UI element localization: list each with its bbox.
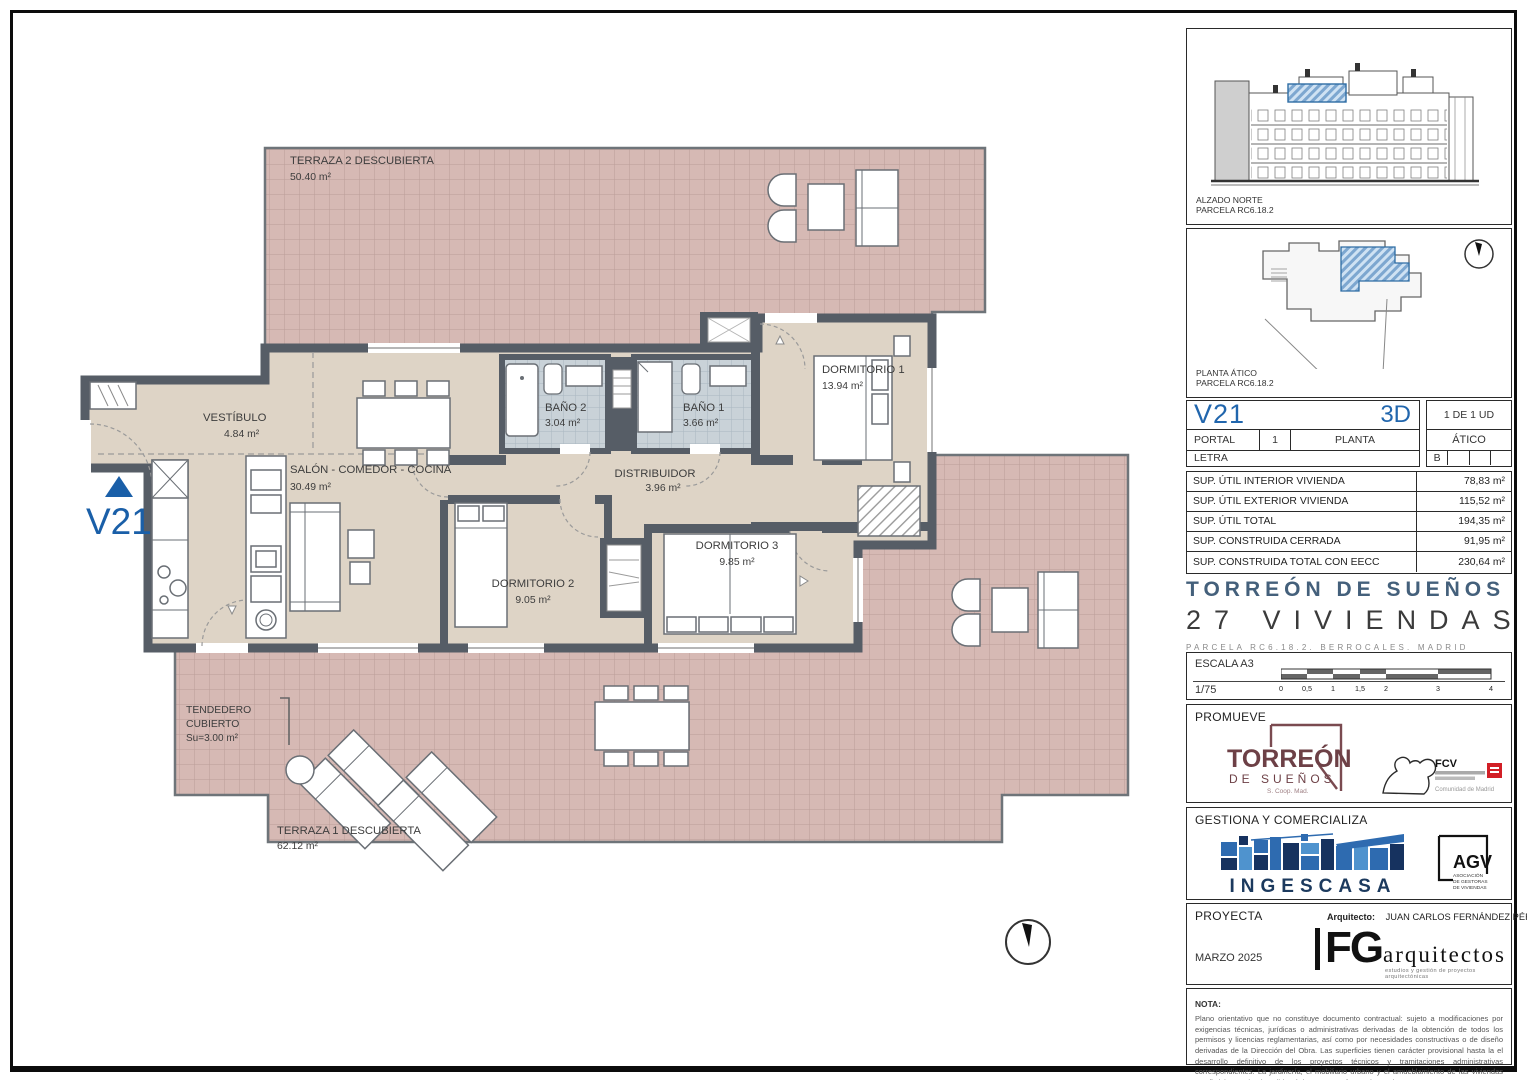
site-plan-drawing — [1187, 229, 1510, 369]
gestiona-logos: INGESCASA AGV ASOCIACIÓN DE GESTORAS DE … — [1187, 808, 1510, 898]
room-area-terraza2: 50.40 m² — [290, 172, 332, 183]
project-units: 27 VIVIENDAS — [1186, 605, 1512, 636]
room-area-dormitorio3: 9.85 m² — [719, 557, 755, 568]
project-name: TORREÓN DE SUEÑOS — [1186, 578, 1512, 602]
agv-line2: DE GESTORAS — [1453, 879, 1488, 885]
fcv-logo: FCV Comunidad de Madrid — [1383, 757, 1502, 794]
north-arrow-icon — [1006, 920, 1050, 964]
room-label-terraza1: TERRAZA 1 DESCUBIERTA — [277, 825, 421, 837]
agv-line1: ASOCIACIÓN — [1453, 872, 1484, 879]
scale-tick: 4 — [1489, 684, 1493, 693]
project-title-block: TORREÓN DE SUEÑOS 27 VIVIENDAS PARCELA R… — [1186, 578, 1512, 652]
panel-alzado-norte: ALZADO NORTE PARCELA RC6.18.2 — [1186, 28, 1512, 225]
floor-plan-drawing: V21 TERRAZA 2 DESCUBIERTA 50.40 m² VESTÍ… — [0, 0, 1185, 1080]
room-area-dormitorio1: 13.94 m² — [822, 381, 864, 392]
scale-label: ESCALA A3 — [1195, 658, 1254, 670]
surface-label: SUP. ÚTIL EXTERIOR VIVIENDA — [1187, 492, 1416, 511]
agv-logo: AGV ASOCIACIÓN DE GESTORAS DE VIVIENDAS — [1439, 836, 1492, 891]
room-area-salon: 30.49 m² — [290, 482, 332, 493]
torreon-logo-title: TORREÓN — [1227, 743, 1352, 773]
proyecta-box: PROYECTA Arquitecto: JUAN CARLOS FERNÁND… — [1186, 903, 1512, 985]
fg-logo-name: arquitectos — [1383, 942, 1506, 968]
fcv-horse-icon — [1383, 757, 1436, 794]
elevation-drawing — [1187, 29, 1510, 194]
torreon-logo-coop: S. Coop. Mad. — [1267, 788, 1309, 795]
surface-row: SUP. CONSTRUIDA CERRADA 91,95 m² — [1187, 532, 1511, 552]
gestiona-box: GESTIONA Y COMERCIALIZA INGESCASA AGV AS… — [1186, 807, 1512, 900]
planta-subtitle: PARCELA RC6.18.2 — [1196, 378, 1274, 389]
fg-logo-tagline: estudios y gestión de proyectos arquitec… — [1385, 968, 1511, 980]
scale-tick: 2 — [1384, 684, 1388, 693]
surfaces-table: SUP. ÚTIL INTERIOR VIVIENDA 78,83 m² SUP… — [1186, 471, 1512, 574]
surface-row: SUP. CONSTRUIDA TOTAL CON EECC 230,64 m² — [1187, 552, 1511, 572]
agv-text: AGV — [1453, 852, 1492, 872]
scale-box: ESCALA A3 1/75 0 0,5 1 1,5 2 3 4 — [1186, 652, 1512, 700]
room-label-bano1: BAÑO 1 — [683, 401, 724, 414]
scale-tick: 3 — [1436, 684, 1440, 693]
letra-value: B — [1427, 451, 1447, 465]
surface-label: SUP. CONSTRUIDA CERRADA — [1187, 532, 1416, 551]
nota-label: NOTA: — [1195, 999, 1221, 1009]
surface-label: SUP. ÚTIL INTERIOR VIVIENDA — [1187, 472, 1416, 491]
project-date: MARZO 2025 — [1195, 952, 1262, 964]
alzado-subtitle: PARCELA RC6.18.2 — [1196, 205, 1274, 216]
unit-entrance-marker: V21 — [86, 476, 152, 542]
panel-planta-atico: PLANTA ÁTICO PARCELA RC6.18.2 — [1186, 228, 1512, 398]
cam-text: Comunidad de Madrid — [1435, 787, 1494, 793]
fg-logo-bar — [1315, 928, 1320, 970]
unit-code: V21 — [1194, 399, 1245, 430]
room-label-vestibulo: VESTÍBULO — [203, 411, 267, 424]
surface-value: 115,52 m² — [1416, 492, 1511, 511]
surface-value: 230,64 m² — [1416, 552, 1511, 572]
room-label-tendedero1: TENDEDERO — [186, 705, 251, 716]
surface-value: 78,83 m² — [1416, 472, 1511, 491]
room-area-tendedero: Su=3.00 m² — [186, 733, 239, 744]
room-area-bano1: 3.66 m² — [683, 418, 719, 429]
room-area-bano2: 3.04 m² — [545, 418, 581, 429]
architect-name: JUAN CARLOS FERNÁNDEZ PÉREZ — [1386, 912, 1527, 922]
planta-value: ÁTICO — [1427, 430, 1511, 450]
scale-tick: 0,5 — [1302, 684, 1312, 693]
room-label-distribuidor: DISTRIBUIDOR — [615, 468, 696, 480]
room-label-terraza2: TERRAZA 2 DESCUBIERTA — [290, 155, 434, 167]
room-label-bano2: BAÑO 2 — [545, 401, 586, 414]
surface-row: SUP. ÚTIL TOTAL 194,35 m² — [1187, 512, 1511, 532]
surface-value: 194,35 m² — [1416, 512, 1511, 531]
project-location: PARCELA RC6.18.2. BERROCALES. MADRID — [1186, 643, 1512, 652]
plan-sheet: V21 TERRAZA 2 DESCUBIERTA 50.40 m² VESTÍ… — [0, 0, 1527, 1080]
ingescasa-text: INGESCASA — [1230, 876, 1397, 897]
promueve-logos: TORREÓN DE SUEÑOS S. Coop. Mad. FCV Comu… — [1187, 705, 1510, 801]
room-area-vestibulo: 4.84 m² — [224, 429, 260, 440]
agv-line3: DE VIVIENDAS — [1453, 885, 1487, 891]
planta-title: PLANTA ÁTICO — [1196, 368, 1274, 379]
room-label-dormitorio3: DORMITORIO 3 — [696, 540, 779, 552]
proyecta-label: PROYECTA — [1195, 909, 1263, 923]
unit-count: 1 DE 1 UD — [1427, 401, 1511, 429]
planta-label: PLANTA — [1291, 430, 1419, 450]
cam-flag-icon — [1487, 763, 1502, 778]
scale-bar: 0 0,5 1 1,5 2 3 4 — [1281, 653, 1497, 701]
torreon-logo-subtitle: DE SUEÑOS — [1229, 772, 1336, 786]
unit-id-values: 1 DE 1 UD ÁTICO B — [1426, 400, 1512, 467]
room-label-salon: SALÓN - COMEDOR - COCINA — [290, 463, 452, 476]
ingescasa-logo-icon — [1221, 834, 1404, 870]
portal-value: 1 — [1259, 430, 1291, 450]
promueve-box: PROMUEVE TORREÓN DE SUEÑOS S. Coop. Mad.… — [1186, 704, 1512, 803]
room-label-tendedero2: CUBIERTO — [186, 719, 239, 730]
surface-label: SUP. CONSTRUIDA TOTAL CON EECC — [1187, 552, 1416, 572]
scale-tick: 1,5 — [1355, 684, 1365, 693]
room-label-dormitorio1: DORMITORIO 1 — [822, 364, 905, 376]
alzado-title: ALZADO NORTE — [1196, 195, 1274, 206]
nota-box: NOTA: Plano orientativo que no constituy… — [1186, 988, 1512, 1065]
fg-logo-initials: FG — [1325, 926, 1382, 970]
surface-value: 91,95 m² — [1416, 532, 1511, 551]
room-label-dormitorio2: DORMITORIO 2 — [492, 578, 575, 590]
unit-view-3d: 3D — [1380, 401, 1411, 429]
portal-label: PORTAL — [1187, 430, 1259, 450]
nota-text: Plano orientativo que no constituye docu… — [1195, 1014, 1503, 1080]
unit-marker-label: V21 — [86, 501, 152, 542]
scale-tick: 1 — [1331, 684, 1335, 693]
letra-label: LETRA — [1187, 451, 1228, 465]
room-area-terraza1: 62.12 m² — [277, 841, 319, 852]
scale-tick: 0 — [1279, 684, 1283, 693]
architect-label: Arquitecto: — [1327, 912, 1375, 922]
surface-row: SUP. ÚTIL INTERIOR VIVIENDA 78,83 m² — [1187, 472, 1511, 492]
fcv-text: FCV — [1435, 758, 1458, 770]
room-area-dormitorio2: 9.05 m² — [515, 595, 551, 606]
surface-row: SUP. ÚTIL EXTERIOR VIVIENDA 115,52 m² — [1187, 492, 1511, 512]
room-area-distribuidor: 3.96 m² — [645, 483, 681, 494]
unit-id-table: V21 3D PORTAL 1 PLANTA LETRA — [1186, 400, 1420, 467]
scale-ratio: 1/75 — [1195, 684, 1216, 696]
surface-label: SUP. ÚTIL TOTAL — [1187, 512, 1416, 531]
scale-bar-graphic — [1281, 668, 1493, 680]
